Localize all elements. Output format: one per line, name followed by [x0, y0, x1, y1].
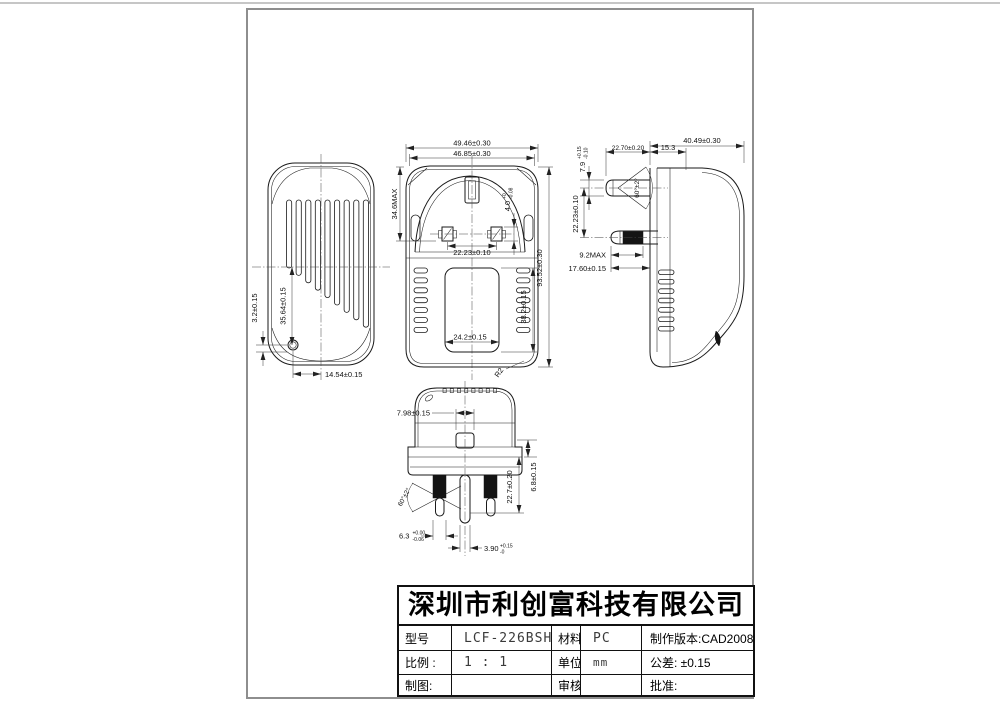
dim-face-depth: 15.3: [661, 143, 676, 152]
back-view: 3.2±0.15 35.64±0.15 14.54±0.15: [250, 154, 390, 380]
drafter-value: [452, 675, 552, 695]
material-label: 材料:: [552, 626, 581, 650]
table-row: 比例 : 1 : 1 单位: mm 公差: ±0.15: [399, 651, 753, 675]
front-view: 49.46±0.30 46.85±0.30 34.6MAX 4.0 +0 -0.…: [390, 139, 553, 381]
top-vent-ticks: [443, 389, 497, 393]
dim-plug-height: 34.6MAX: [390, 189, 399, 220]
dim-earth-pin-len: 22.70±0.20: [612, 145, 645, 152]
checker-label: 审核:: [552, 675, 581, 695]
dim-led-x: 14.54±0.15: [325, 370, 362, 379]
bottom-view: 60°±2° 7.98±0.15 6.8±0.15 22.7±0.20 6.3 …: [396, 381, 538, 556]
version-field: 制作版本:CAD2008: [642, 626, 753, 650]
dim-label-width: 24.2±0.15: [453, 333, 486, 342]
title-block: 深圳市利创富科技有限公司 型号 LCF-226BSH 材料: PC 制作版本:C…: [397, 585, 755, 697]
led-hole: [288, 340, 298, 350]
dim-width-outer: 49.46±0.30: [453, 139, 490, 148]
neutral-pin-sleeve: [484, 475, 497, 498]
approver-field: 批准:: [642, 675, 753, 695]
svg-text:7.9: 7.9: [578, 162, 587, 172]
svg-text:-0.06: -0.06: [413, 537, 425, 543]
svg-text:+0.15: +0.15: [577, 146, 583, 159]
dim-led-offset: 3.2±0.15: [250, 293, 259, 322]
dim-pin-length: 22.7±0.20: [505, 470, 514, 503]
dim-pin-pitch: 22.23±0.10: [453, 248, 490, 257]
dim-earth-pin-width: 3.90 +0.15 -0: [484, 544, 513, 556]
svg-text:-0: -0: [500, 550, 505, 556]
model-label: 型号: [399, 626, 452, 650]
unit-label: 单位:: [552, 651, 581, 674]
drafter-label: 制图:: [399, 675, 452, 695]
dim-sleeve-max: 9.2MAX: [579, 251, 606, 260]
dim-width-inner: 46.85±0.30: [453, 149, 490, 158]
dim-live-pin-len: 17.60±0.15: [569, 264, 606, 273]
svg-text:+0: +0: [502, 193, 508, 199]
scale-value: 1 : 1: [452, 651, 552, 674]
model-value: LCF-226BSH: [452, 626, 552, 650]
side-vents: [659, 270, 675, 331]
dim-step: 6.8±0.15: [529, 462, 538, 491]
dim-led-height: 35.64±0.15: [279, 287, 288, 324]
dim-pin-angle-bottom: 60°±2°: [396, 486, 412, 507]
svg-text:6.3: 6.3: [399, 532, 409, 541]
svg-text:+0.00: +0.00: [413, 531, 426, 537]
svg-text:3.90: 3.90: [484, 544, 499, 553]
svg-text:4.0: 4.0: [503, 201, 512, 211]
dim-pin-spacing: 22.23±0.10: [571, 195, 580, 232]
scale-label: 比例 :: [399, 651, 452, 674]
dim-label-height: 38.2±0.15: [519, 290, 528, 323]
side-view: 60°±2° 40.49±0.30 22.70±0.20 15.3 7.9 +0…: [569, 136, 744, 367]
table-row: 型号 LCF-226BSH 材料: PC 制作版本:CAD2008: [399, 626, 753, 651]
dim-earth-pin-dia: 7.9 +0.15 -0.10: [577, 146, 590, 172]
material-value: PC: [581, 626, 642, 650]
live-pin-sleeve: [433, 475, 446, 498]
dim-fuse-width: 7.98±0.15: [397, 409, 430, 418]
svg-text:-0.08: -0.08: [509, 187, 515, 199]
checker-value: [581, 675, 642, 695]
vent-slots: [287, 200, 369, 327]
dim-pin-width-bottom: 6.3 +0.00 -0.06: [399, 531, 425, 544]
note-corner-radius: R2: [493, 366, 506, 379]
unit-value: mm: [581, 651, 642, 674]
dim-depth: 40.49±0.30: [683, 136, 720, 145]
company-name: 深圳市利创富科技有限公司: [399, 587, 753, 626]
table-row: 制图: 审核: 批准:: [399, 675, 753, 695]
svg-text:-0.10: -0.10: [584, 147, 590, 159]
tolerance-field: 公差: ±0.15: [642, 651, 753, 674]
